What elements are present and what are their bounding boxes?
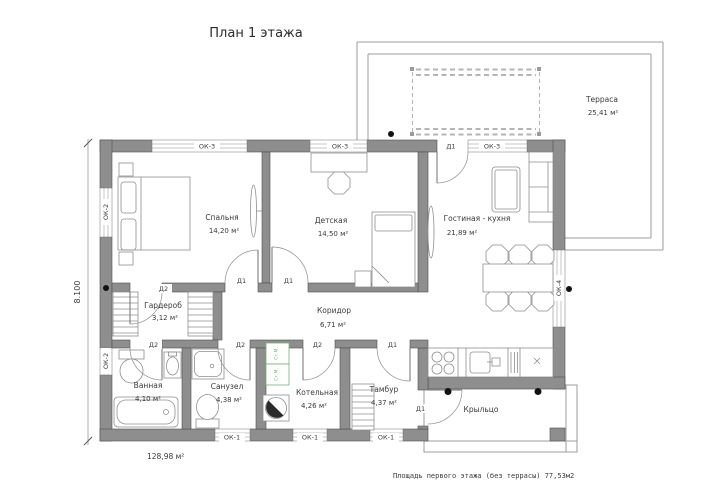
room-area-wc: 4,38 м² (216, 396, 242, 404)
room-area-corridor: 6,71 м² (320, 321, 346, 329)
door-tag-d2: Д2 (159, 285, 168, 293)
door-tag-d2: Д2 (313, 341, 322, 349)
door-tag-d2: Д2 (236, 341, 245, 349)
desk-symbol (311, 153, 367, 172)
bed-symbol (372, 212, 415, 287)
door-tag-d2: Д2 (149, 341, 158, 349)
floor-plan-canvas: 8.100 (0, 0, 710, 502)
boiler-room-furniture: Ст.М. Ст.М. (263, 343, 289, 421)
closet-rack-symbol (188, 292, 213, 336)
chair-symbol (328, 172, 350, 194)
room-area-bathroom: 4,10 м² (135, 395, 161, 403)
washing-machine-symbol: Ст.М. (266, 343, 289, 364)
door-boiler (303, 348, 335, 380)
room-label-boiler: Котельная (296, 388, 338, 397)
washer-label: Ст.М. (274, 347, 280, 360)
window-tag-ok3: ОК-3 (484, 143, 500, 151)
window-tag-ok2: ОК-2 (102, 353, 110, 369)
room-area-kids: 14,50 м² (318, 230, 349, 238)
door-tag-d1: Д1 (284, 277, 293, 285)
door-tambour (377, 348, 410, 381)
room-area-tambour: 4,37 м² (371, 399, 397, 407)
total-area-text: 128,98 м² (147, 452, 184, 461)
terrace-overhang-dashed (410, 67, 541, 136)
boiler-symbol (263, 395, 289, 421)
room-label-tambour: Тамбур (369, 385, 399, 394)
page-title: План 1 этажа (209, 26, 302, 41)
room-area-bedroom: 14,20 м² (209, 227, 240, 235)
door-terrace (437, 152, 468, 183)
tv-symbol (428, 206, 434, 258)
door-tag-d1: Д1 (388, 341, 397, 349)
nightstand-symbol (119, 252, 133, 265)
window-tag-ok1: ОК-1 (224, 434, 240, 442)
room-area-terrace: 25,41 м² (588, 109, 619, 117)
kitchen-counter (428, 348, 553, 377)
washbasin-symbol (164, 352, 181, 378)
window-tag-ok4: ОК-4 (555, 280, 563, 296)
room-label-porch: Крыльцо (464, 405, 499, 414)
door-tag-d1: Д1 (237, 277, 246, 285)
room-area-living: 21,89 м² (447, 229, 478, 237)
room-label-corridor: Коридор (317, 306, 351, 315)
dimension-left: 8.100 (73, 139, 92, 445)
tv-symbol (251, 185, 257, 237)
room-label-living: Гостиная - кухня (444, 214, 511, 223)
floor-plan-page: 8.100 (0, 0, 710, 502)
door-entrance (428, 390, 462, 424)
bed-symbol (118, 177, 190, 250)
room-label-wc: Санузел (211, 382, 244, 391)
nightstand-symbol (355, 271, 371, 287)
washing-machine-symbol: Ст.М. (266, 364, 289, 385)
room-label-bedroom: Спальня (205, 213, 238, 222)
bedroom-furniture (118, 163, 262, 265)
room-label-terrace: Терраса (585, 95, 618, 104)
window-tag-ok1: ОК-1 (302, 434, 318, 442)
dining-table-symbol (483, 264, 553, 292)
window-tag-ok2: ОК-2 (102, 204, 110, 220)
room-label-wardrobe: Гардероб (144, 301, 182, 310)
coffee-table-symbol (492, 167, 520, 212)
window-tag-ok3: ОК-3 (199, 143, 215, 151)
closet-rack-symbol (113, 292, 138, 336)
washer-label: Ст.М. (274, 368, 280, 381)
room-label-bathroom: Ванная (134, 381, 163, 390)
room-label-kids: Детская (315, 216, 348, 225)
room-area-boiler: 4,26 м² (301, 402, 327, 410)
footer-note: Площадь первого этажа (без террасы) 77,5… (393, 472, 574, 480)
window-tag-ok3: ОК-3 (332, 143, 348, 151)
toilet-symbol (119, 350, 144, 383)
window-tag-ok1: ОК-1 (378, 434, 394, 442)
dimension-left-value: 8.100 (73, 281, 82, 304)
room-area-wardrobe: 3,12 м² (152, 314, 178, 322)
shower-symbol (192, 349, 224, 379)
door-tag-d1: Д1 (446, 143, 455, 151)
door-tag-d1: Д1 (416, 405, 425, 413)
living-furniture (423, 152, 554, 377)
nightstand-symbol (119, 163, 133, 176)
